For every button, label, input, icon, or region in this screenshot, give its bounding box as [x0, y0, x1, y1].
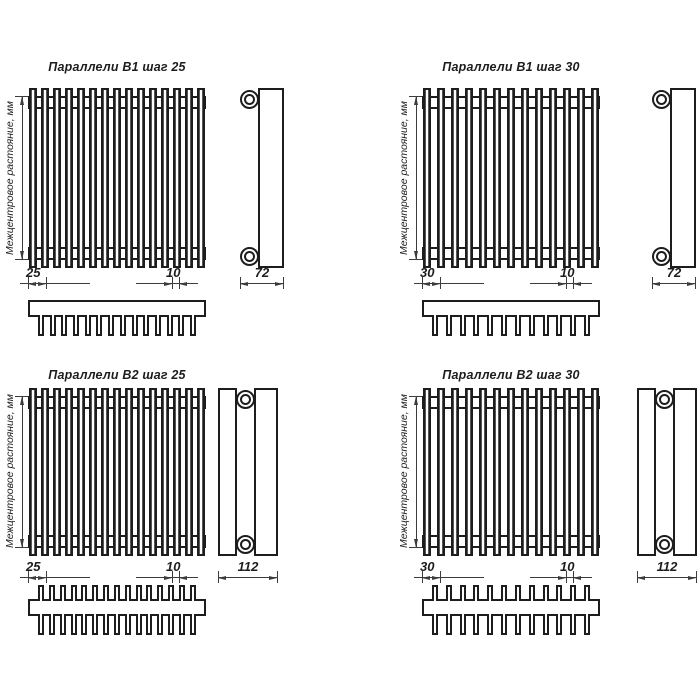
tube-end	[570, 315, 576, 336]
arrow-right-icon	[558, 576, 566, 580]
tube-width-dimension: 10	[136, 554, 198, 580]
arrow-right-icon	[432, 576, 440, 580]
view-title: Параллели В2 шаг 25	[28, 368, 206, 382]
pipe-port-top	[652, 90, 671, 109]
tube-width-dimension: 10	[530, 554, 592, 580]
tube-end	[570, 585, 576, 601]
tube-end	[38, 315, 44, 336]
tube-end	[487, 614, 493, 635]
tube-end	[61, 315, 67, 336]
tube-end	[73, 315, 79, 336]
tube-end	[556, 614, 562, 635]
pipe-port-top	[655, 390, 674, 409]
radiator-tube	[137, 88, 145, 268]
radiator-tube	[423, 88, 431, 268]
tube-end	[168, 585, 174, 601]
side-body	[258, 88, 284, 268]
tube-end	[155, 315, 161, 336]
radiator-tube	[465, 88, 473, 268]
view-title: Параллели В1 шаг 25	[28, 60, 206, 74]
arrow-up-icon	[20, 396, 24, 405]
radiator-tube	[77, 388, 85, 556]
radiator-tube	[549, 388, 557, 556]
arrow-right-icon	[164, 282, 172, 286]
tube-end	[460, 315, 466, 336]
tube-end	[432, 614, 438, 635]
tube-end	[103, 585, 109, 601]
arrow-right-icon	[164, 576, 172, 580]
tube-end	[543, 614, 549, 635]
tube-end	[501, 585, 507, 601]
tube-end	[584, 614, 590, 635]
tube-end	[167, 315, 173, 336]
radiator-tube	[437, 388, 445, 556]
tube-end	[446, 585, 452, 601]
axis-label: Межцентровое растояние, мм	[4, 396, 16, 548]
radiator-tube	[41, 388, 49, 556]
tube-end	[71, 614, 77, 635]
tube-end	[125, 614, 131, 635]
arrow-left-icon	[218, 576, 226, 580]
tube-end	[103, 614, 109, 635]
radiator-tube	[423, 388, 431, 556]
arrow-left-icon	[637, 576, 645, 580]
side-view	[637, 388, 697, 556]
tube-end	[446, 614, 452, 635]
view-title: Параллели В2 шаг 30	[422, 368, 600, 382]
tube-end	[178, 315, 184, 336]
radiator-tube	[451, 88, 459, 268]
radiator-tube	[53, 88, 61, 268]
tube-ends-row-bottom	[28, 614, 206, 635]
depth-value: 112	[637, 559, 697, 574]
tube-end	[556, 585, 562, 601]
tube-end	[190, 614, 196, 635]
tube-end	[179, 614, 185, 635]
arrow-down-icon	[414, 539, 418, 548]
side-view	[240, 88, 284, 268]
arrow-up-icon	[20, 96, 24, 105]
arrow-right-icon	[688, 576, 696, 580]
tube-end	[85, 315, 91, 336]
tube-end	[60, 585, 66, 601]
tube-row	[29, 388, 205, 556]
arrow-right-icon	[275, 282, 283, 286]
tube-ends-row	[28, 315, 206, 336]
tube-end	[157, 614, 163, 635]
radiator-tube	[479, 88, 487, 268]
radiator-tube	[173, 388, 181, 556]
arrow-left-icon	[240, 282, 248, 286]
radiator-tube	[465, 388, 473, 556]
radiator-tube	[125, 388, 133, 556]
tube-ends-row-bottom	[422, 614, 600, 635]
tube-end	[81, 614, 87, 635]
tube-end	[157, 585, 163, 601]
tube-end	[49, 585, 55, 601]
tube-end	[473, 315, 479, 336]
axis-label: Межцентровое растояние, мм	[398, 96, 410, 260]
tube-end	[584, 585, 590, 601]
radiator-tube	[89, 388, 97, 556]
side-body-front-row	[637, 388, 656, 556]
pipe-port-bottom	[655, 535, 674, 554]
tube-ends-row-top	[422, 585, 600, 601]
arrow-left-icon	[573, 576, 581, 580]
arrow-left-icon	[422, 576, 430, 580]
tube-end	[146, 585, 152, 601]
radiator-tube	[125, 88, 133, 268]
radiator-tube	[65, 88, 73, 268]
radiator-tube	[521, 388, 529, 556]
top-view	[422, 300, 600, 336]
arrow-left-icon	[422, 282, 430, 286]
radiator-tube	[113, 88, 121, 268]
arrow-up-icon	[414, 96, 418, 105]
tube-end	[168, 614, 174, 635]
tube-end	[190, 585, 196, 601]
tube-end	[543, 315, 549, 336]
front-view	[422, 388, 600, 556]
radiator-tube	[521, 88, 529, 268]
arrow-right-icon	[38, 576, 46, 580]
tube-end	[96, 315, 102, 336]
tube-end	[49, 614, 55, 635]
tube-end	[190, 315, 196, 336]
radiator-tube	[149, 88, 157, 268]
radiator-tube	[41, 88, 49, 268]
arrow-up-icon	[414, 396, 418, 405]
tube-end	[432, 315, 438, 336]
arrow-right-icon	[38, 282, 46, 286]
radiator-tube	[29, 388, 37, 556]
tube-end	[132, 315, 138, 336]
arrow-right-icon	[687, 282, 695, 286]
arrow-right-icon	[269, 576, 277, 580]
tube-row	[423, 88, 599, 268]
drawing-b2-step-30: Параллели В2 шаг 30 Межцентровое растоян…	[400, 368, 696, 664]
radiator-tube	[507, 88, 515, 268]
radiator-tube	[549, 88, 557, 268]
arrow-down-icon	[20, 539, 24, 548]
technical-drawing-canvas: Параллели В1 шаг 25 Межцентровое растоян…	[0, 0, 700, 700]
tube-end	[71, 585, 77, 601]
tube-end	[136, 614, 142, 635]
tube-row	[423, 388, 599, 556]
radiator-tube	[535, 88, 543, 268]
top-view	[28, 585, 206, 635]
side-body	[670, 88, 696, 268]
drawing-b2-step-25: Параллели В2 шаг 25 Межцентровое растоян…	[6, 368, 302, 664]
tube-end	[556, 315, 562, 336]
arrow-right-icon	[432, 282, 440, 286]
tube-end	[529, 315, 535, 336]
pipe-port-bottom	[652, 247, 671, 266]
radiator-tube	[53, 388, 61, 556]
front-view	[422, 88, 600, 268]
tube-end	[92, 585, 98, 601]
side-body-front-row	[218, 388, 237, 556]
tube-end	[125, 585, 131, 601]
vertical-dimension-line	[416, 396, 417, 548]
axis-label: Межцентровое растояние, мм	[398, 396, 410, 548]
tube-end	[543, 585, 549, 601]
radiator-tube	[29, 88, 37, 268]
arrow-left-icon	[28, 282, 36, 286]
radiator-tube	[173, 88, 181, 268]
tube-end	[179, 585, 185, 601]
top-view	[28, 300, 206, 336]
radiator-tube	[161, 388, 169, 556]
pitch-dimension: 30	[414, 554, 484, 580]
radiator-tube	[113, 388, 121, 556]
radiator-tube	[493, 388, 501, 556]
pipe-port-bottom	[240, 247, 259, 266]
radiator-tube	[101, 388, 109, 556]
radiator-tube	[77, 88, 85, 268]
drawing-b1-step-30: Параллели В1 шаг 30 Межцентровое растоян…	[400, 60, 696, 356]
tube-ends-row-top	[28, 585, 206, 601]
tube-end	[501, 614, 507, 635]
vertical-dimension-line	[22, 396, 23, 548]
tube-end	[529, 614, 535, 635]
front-view	[28, 88, 206, 268]
radiator-tube	[137, 388, 145, 556]
tube-end	[143, 315, 149, 336]
tube-end	[38, 614, 44, 635]
side-view	[652, 88, 696, 268]
tube-end	[473, 614, 479, 635]
tube-end	[515, 315, 521, 336]
radiator-tube	[197, 88, 205, 268]
depth-dimension: 112	[637, 554, 697, 580]
tube-end	[92, 614, 98, 635]
arrow-down-icon	[414, 251, 418, 260]
radiator-tube	[161, 88, 169, 268]
radiator-tube	[591, 88, 599, 268]
radiator-tube	[535, 388, 543, 556]
pipe-port-bottom	[236, 535, 255, 554]
tube-end	[114, 614, 120, 635]
tube-end	[136, 585, 142, 601]
tube-end	[570, 614, 576, 635]
side-body-back-row	[673, 388, 697, 556]
radiator-tube	[149, 388, 157, 556]
tube-end	[515, 585, 521, 601]
radiator-tube	[479, 388, 487, 556]
tube-end	[81, 585, 87, 601]
pipe-port-top	[236, 390, 255, 409]
arrow-down-icon	[20, 251, 24, 260]
radiator-tube	[185, 88, 193, 268]
tube-end	[473, 585, 479, 601]
side-body-back-row	[254, 388, 278, 556]
radiator-tube	[437, 88, 445, 268]
arrow-right-icon	[558, 282, 566, 286]
depth-value: 112	[218, 559, 278, 574]
tube-end	[446, 315, 452, 336]
radiator-tube	[507, 388, 515, 556]
drawing-b1-step-25: Параллели В1 шаг 25 Межцентровое растоян…	[6, 60, 302, 356]
tube-end	[114, 585, 120, 601]
radiator-tube	[451, 388, 459, 556]
arrow-left-icon	[179, 282, 187, 286]
tube-end	[584, 315, 590, 336]
radiator-tube	[101, 88, 109, 268]
tube-end	[432, 585, 438, 601]
tube-end	[50, 315, 56, 336]
side-view	[218, 388, 278, 556]
tube-end	[460, 614, 466, 635]
radiator-tube	[197, 388, 205, 556]
tube-row	[29, 88, 205, 268]
radiator-tube	[563, 88, 571, 268]
tube-end	[60, 614, 66, 635]
tube-end	[108, 315, 114, 336]
pitch-dimension: 25	[20, 554, 90, 580]
depth-value: 72	[240, 265, 284, 280]
vertical-dimension-line	[22, 96, 23, 260]
arrow-left-icon	[652, 282, 660, 286]
arrow-left-icon	[28, 576, 36, 580]
depth-dimension: 112	[218, 554, 278, 580]
radiator-tube	[577, 88, 585, 268]
vertical-dimension-line	[416, 96, 417, 260]
arrow-left-icon	[573, 282, 581, 286]
radiator-tube	[185, 388, 193, 556]
arrow-left-icon	[179, 576, 187, 580]
tube-end	[501, 315, 507, 336]
depth-value: 72	[652, 265, 696, 280]
radiator-tube	[591, 388, 599, 556]
front-view	[28, 388, 206, 556]
tube-end	[487, 315, 493, 336]
tube-ends-row	[422, 315, 600, 336]
tube-end	[120, 315, 126, 336]
axis-label: Межцентровое растояние, мм	[4, 96, 16, 260]
radiator-tube	[89, 88, 97, 268]
tube-end	[529, 585, 535, 601]
tube-end	[460, 585, 466, 601]
radiator-tube	[563, 388, 571, 556]
pipe-port-top	[240, 90, 259, 109]
radiator-tube	[65, 388, 73, 556]
radiator-tube	[493, 88, 501, 268]
radiator-tube	[577, 388, 585, 556]
tube-end	[515, 614, 521, 635]
tube-end	[487, 585, 493, 601]
view-title: Параллели В1 шаг 30	[422, 60, 600, 74]
tube-end	[146, 614, 152, 635]
tube-end	[38, 585, 44, 601]
top-view	[422, 585, 600, 635]
